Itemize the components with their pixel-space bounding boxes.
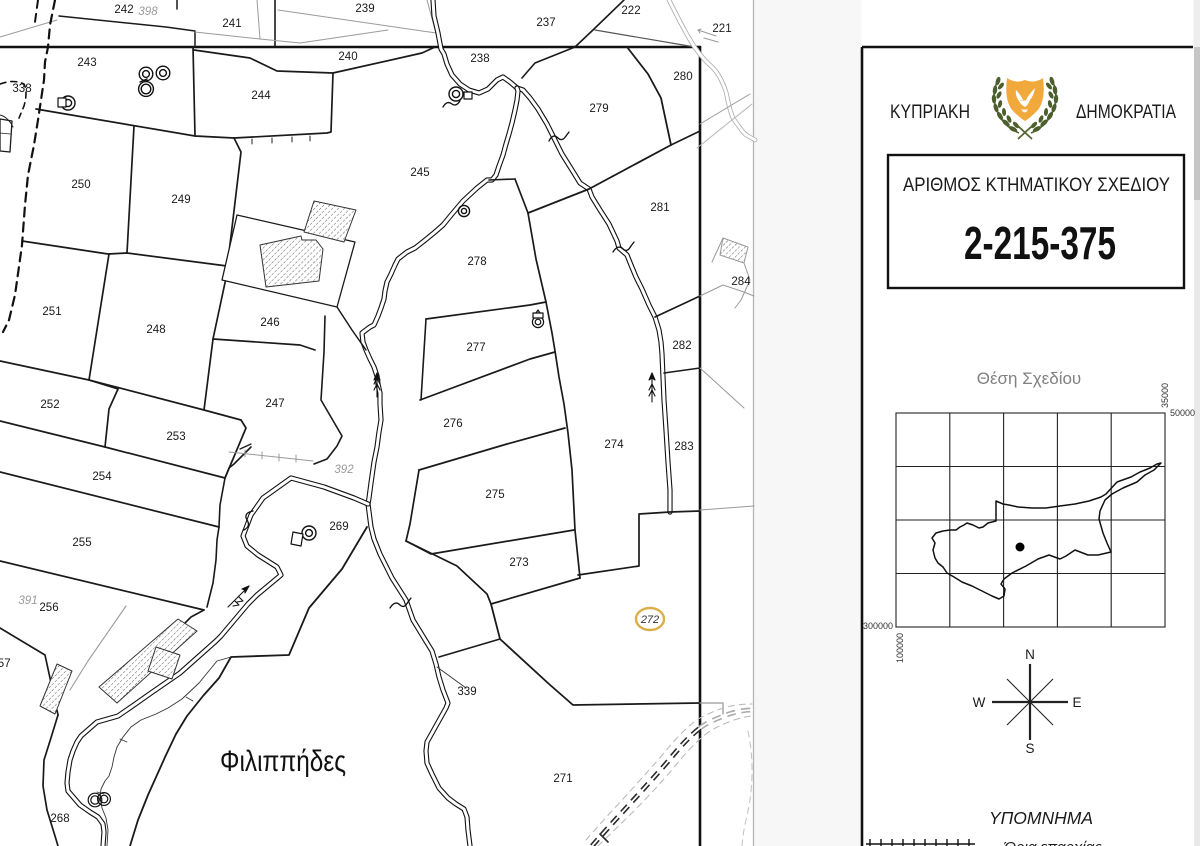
svg-text:279: 279 bbox=[589, 103, 608, 115]
svg-text:284: 284 bbox=[731, 276, 751, 288]
svg-text:222: 222 bbox=[621, 5, 640, 17]
svg-text:50000: 50000 bbox=[1170, 408, 1195, 418]
svg-text:241: 241 bbox=[222, 18, 241, 30]
svg-text:E: E bbox=[1072, 695, 1081, 710]
svg-text:277: 277 bbox=[466, 342, 485, 354]
svg-text:275: 275 bbox=[485, 489, 504, 501]
svg-text:269: 269 bbox=[329, 521, 348, 533]
svg-text:271: 271 bbox=[553, 773, 572, 785]
svg-text:2-215-375: 2-215-375 bbox=[964, 217, 1116, 269]
svg-text:257: 257 bbox=[0, 658, 11, 670]
svg-text:280: 280 bbox=[673, 71, 692, 83]
svg-text:268: 268 bbox=[50, 813, 69, 825]
svg-text:ΥΠΟΜΝΗΜΑ: ΥΠΟΜΝΗΜΑ bbox=[989, 808, 1093, 828]
svg-text:282: 282 bbox=[672, 340, 691, 352]
svg-text:238: 238 bbox=[470, 53, 489, 65]
svg-text:248: 248 bbox=[146, 324, 165, 336]
svg-text:281: 281 bbox=[650, 202, 669, 214]
svg-text:Φιλιππήδες: Φιλιππήδες bbox=[220, 745, 346, 778]
svg-text:247: 247 bbox=[265, 398, 284, 410]
svg-text:N: N bbox=[1025, 647, 1035, 662]
svg-text:251: 251 bbox=[42, 306, 61, 318]
svg-text:273: 273 bbox=[509, 557, 528, 569]
svg-text:338: 338 bbox=[12, 83, 31, 95]
svg-text:Θέση Σχεδίου: Θέση Σχεδίου bbox=[977, 369, 1081, 388]
svg-text:250: 250 bbox=[71, 179, 90, 191]
svg-text:35000: 35000 bbox=[1160, 383, 1170, 408]
svg-text:ΑΡΙΘΜΟΣ ΚΤΗΜΑΤΙΚΟΥ ΣΧΕΔΙΟΥ: ΑΡΙΘΜΟΣ ΚΤΗΜΑΤΙΚΟΥ ΣΧΕΔΙΟΥ bbox=[903, 175, 1170, 196]
svg-text:283: 283 bbox=[674, 441, 693, 453]
svg-text:398: 398 bbox=[138, 6, 158, 18]
svg-text:243: 243 bbox=[77, 57, 96, 69]
svg-text:391: 391 bbox=[18, 595, 37, 607]
svg-text:392: 392 bbox=[334, 464, 354, 476]
svg-text:100000: 100000 bbox=[895, 633, 905, 663]
svg-text:272: 272 bbox=[640, 614, 659, 626]
svg-text:237: 237 bbox=[536, 17, 555, 29]
svg-text:ΔΗΜΟΚΡΑΤΙΑ: ΔΗΜΟΚΡΑΤΙΑ bbox=[1076, 102, 1176, 123]
svg-text:246: 246 bbox=[260, 317, 279, 329]
svg-text:278: 278 bbox=[467, 256, 486, 268]
svg-text:W: W bbox=[973, 695, 986, 710]
svg-text:Όρια επαρχίας: Όρια επαρχίας bbox=[1003, 839, 1102, 846]
svg-text:ΚΥΠΡΙΑΚΗ: ΚΥΠΡΙΑΚΗ bbox=[890, 102, 970, 123]
svg-text:244: 244 bbox=[251, 90, 271, 102]
svg-text:240: 240 bbox=[338, 51, 357, 63]
svg-text:245: 245 bbox=[410, 167, 429, 179]
svg-text:255: 255 bbox=[72, 537, 91, 549]
svg-text:239: 239 bbox=[355, 3, 374, 15]
svg-text:274: 274 bbox=[604, 439, 624, 451]
svg-text:254: 254 bbox=[92, 471, 112, 483]
svg-text:S: S bbox=[1025, 741, 1034, 756]
svg-text:300000: 300000 bbox=[863, 621, 893, 631]
svg-text:221: 221 bbox=[712, 23, 731, 35]
svg-text:276: 276 bbox=[443, 418, 462, 430]
svg-text:252: 252 bbox=[40, 399, 59, 411]
svg-text:249: 249 bbox=[171, 194, 190, 206]
svg-text:339: 339 bbox=[457, 686, 476, 698]
svg-text:242: 242 bbox=[114, 4, 133, 16]
svg-text:256: 256 bbox=[39, 602, 58, 614]
svg-text:253: 253 bbox=[166, 431, 185, 443]
